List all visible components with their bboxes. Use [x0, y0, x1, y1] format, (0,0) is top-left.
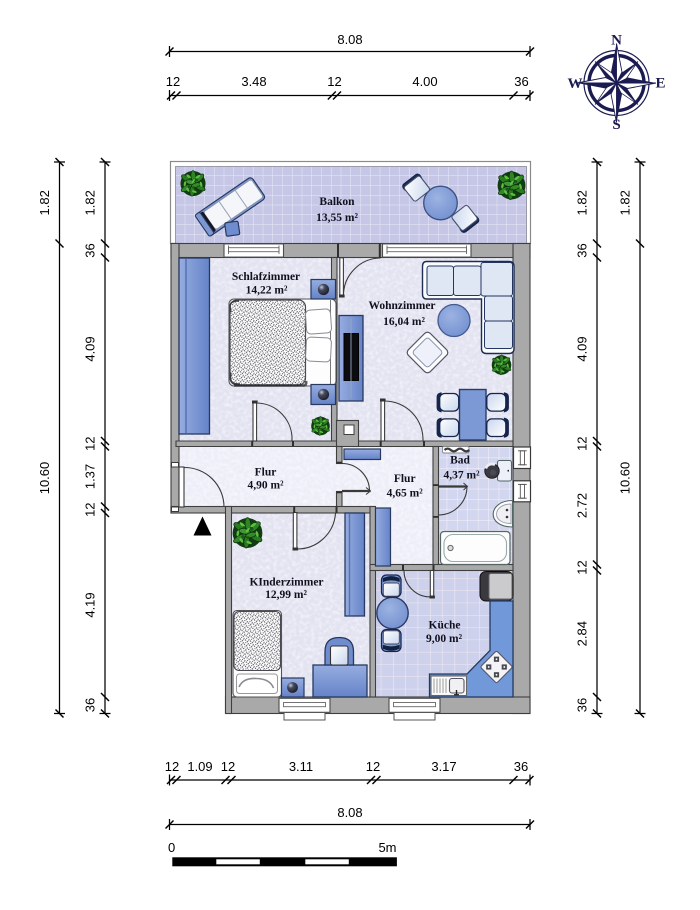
svg-text:Balkon: Balkon: [319, 196, 355, 208]
svg-text:1.82: 1.82: [575, 190, 590, 215]
svg-text:10.60: 10.60: [37, 462, 52, 495]
svg-text:1.82: 1.82: [83, 190, 98, 215]
svg-text:10.60: 10.60: [618, 462, 633, 495]
svg-text:12: 12: [166, 74, 180, 89]
svg-text:4,90 m²: 4,90 m²: [247, 480, 284, 492]
svg-text:Küche: Küche: [429, 620, 461, 632]
svg-text:Schlafzimmer: Schlafzimmer: [232, 271, 300, 283]
svg-text:9,00 m²: 9,00 m²: [426, 633, 463, 645]
svg-text:3.17: 3.17: [431, 759, 456, 774]
svg-text:1.82: 1.82: [37, 190, 52, 215]
svg-text:N: N: [611, 33, 622, 49]
svg-text:36: 36: [514, 759, 528, 774]
svg-text:4.09: 4.09: [83, 336, 98, 361]
svg-text:Wohnzimmer: Wohnzimmer: [368, 300, 435, 312]
svg-text:12: 12: [221, 759, 235, 774]
svg-text:12: 12: [327, 74, 341, 89]
svg-text:2.84: 2.84: [575, 621, 590, 646]
svg-text:8.08: 8.08: [337, 805, 362, 820]
svg-text:KInderzimmer: KInderzimmer: [249, 577, 323, 589]
svg-text:16,04 m²: 16,04 m²: [383, 316, 425, 328]
svg-text:3.11: 3.11: [289, 759, 313, 774]
svg-text:1.82: 1.82: [618, 190, 633, 215]
svg-text:36: 36: [83, 243, 98, 257]
svg-text:Bad: Bad: [450, 455, 470, 467]
svg-text:3.48: 3.48: [241, 74, 266, 89]
svg-text:36: 36: [83, 698, 98, 712]
svg-text:14,22 m²: 14,22 m²: [246, 285, 288, 297]
svg-text:12: 12: [83, 436, 98, 450]
svg-text:12: 12: [165, 759, 179, 774]
svg-text:36: 36: [575, 243, 590, 257]
svg-text:2.72: 2.72: [575, 493, 590, 518]
svg-text:12: 12: [575, 560, 590, 574]
svg-text:12,99 m²: 12,99 m²: [265, 589, 307, 601]
svg-text:1.09: 1.09: [187, 759, 212, 774]
svg-text:12: 12: [366, 759, 380, 774]
svg-text:Flur: Flur: [394, 473, 416, 485]
svg-text:13,55 m²: 13,55 m²: [316, 212, 358, 224]
svg-text:5m: 5m: [378, 840, 396, 855]
svg-text:8.08: 8.08: [337, 32, 362, 47]
svg-text:Flur: Flur: [255, 467, 277, 479]
svg-text:4.19: 4.19: [83, 592, 98, 617]
svg-text:4,37 m²: 4,37 m²: [443, 470, 480, 482]
svg-text:0: 0: [168, 840, 175, 855]
svg-text:4.09: 4.09: [575, 336, 590, 361]
svg-text:12: 12: [83, 502, 98, 516]
svg-text:36: 36: [575, 698, 590, 712]
svg-text:W: W: [568, 76, 583, 92]
svg-text:E: E: [655, 76, 665, 92]
svg-text:4,65 m²: 4,65 m²: [387, 488, 424, 500]
svg-text:S: S: [612, 117, 620, 133]
svg-text:12: 12: [575, 436, 590, 450]
svg-text:36: 36: [514, 74, 528, 89]
svg-text:1.37: 1.37: [83, 464, 98, 489]
svg-text:4.00: 4.00: [412, 74, 437, 89]
